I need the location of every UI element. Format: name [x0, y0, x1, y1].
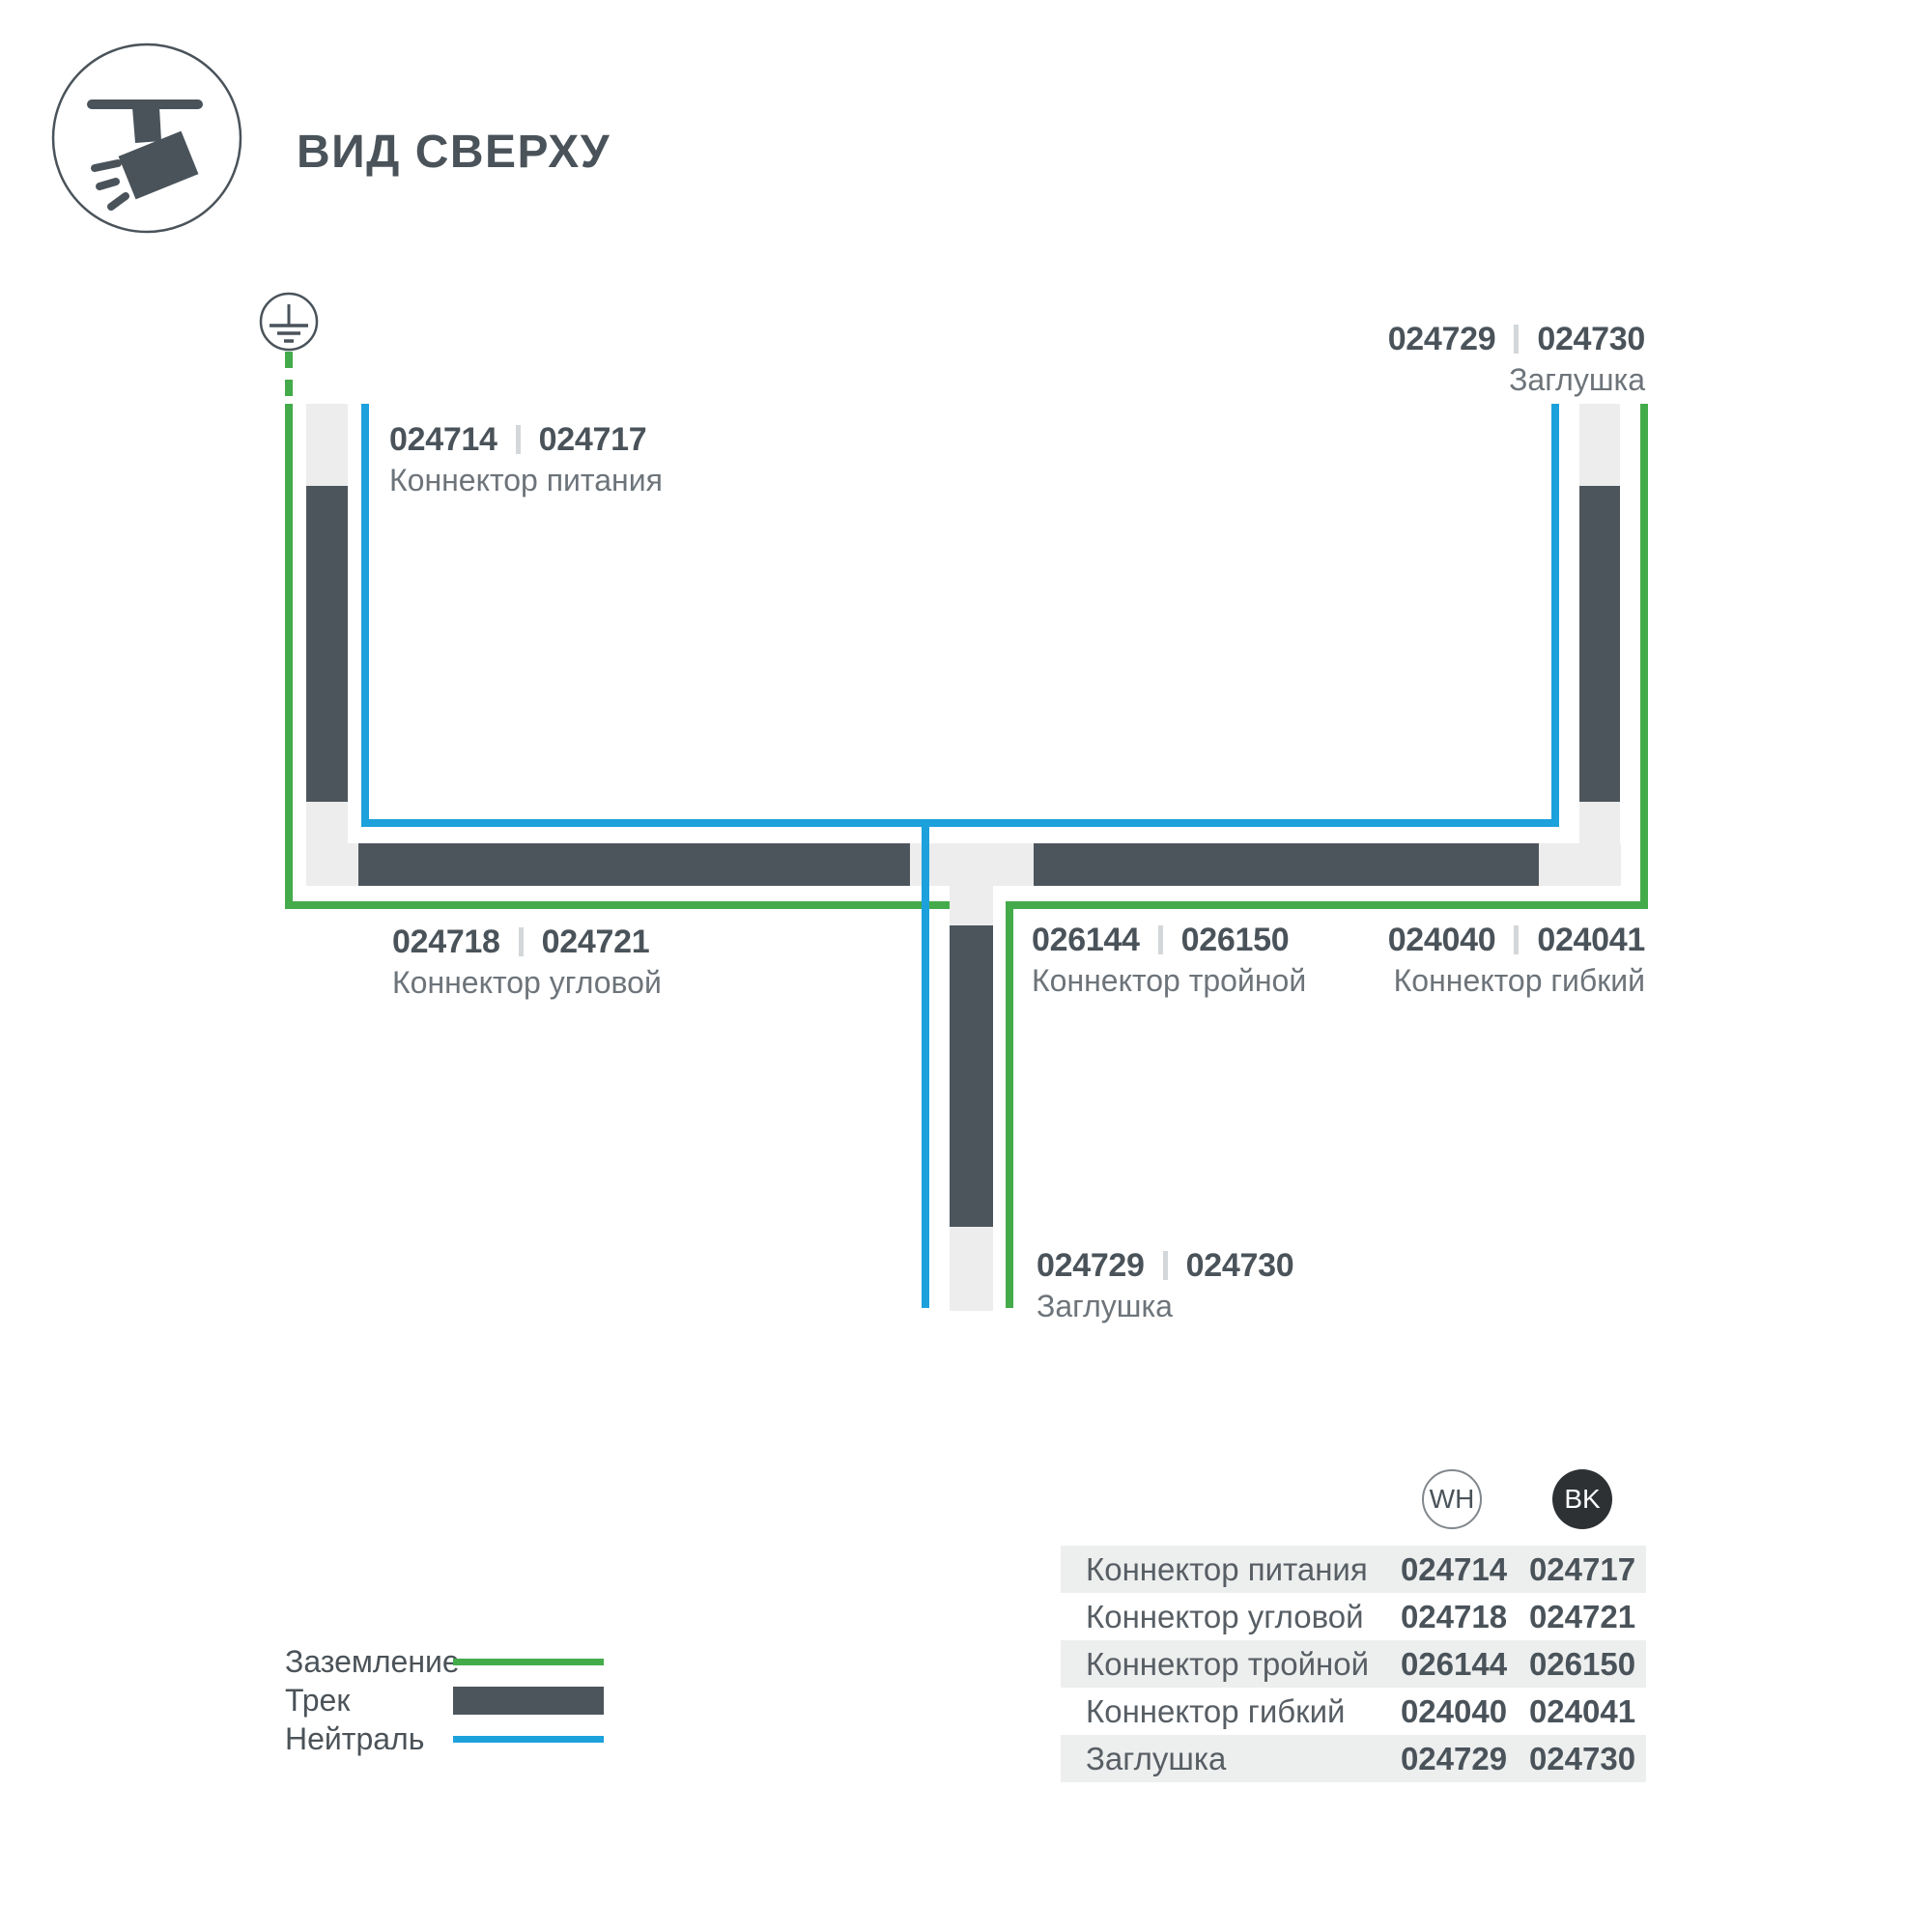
code-bk: 026150 [1181, 923, 1290, 956]
code-wh: 024040 [1388, 923, 1496, 956]
code-bk: 024730 [1537, 323, 1645, 355]
label-name: Коннектор угловой [392, 967, 662, 998]
label-flexible-connector: 024040 024041 Коннектор гибкий [1388, 923, 1645, 996]
table-row: Коннектор гибкий 024040 024041 [1061, 1688, 1646, 1735]
label-corner-connector: 024718 024721 Коннектор угловой [392, 925, 662, 998]
part-code-bk: 024730 [1519, 1743, 1646, 1775]
code-separator [1514, 925, 1519, 954]
label-power-connector: 024714 024717 Коннектор питания [389, 423, 663, 496]
track-horizontal-right-rail [1034, 843, 1539, 886]
code-separator [516, 425, 521, 454]
part-code-wh: 024718 [1389, 1601, 1519, 1633]
track-horizontal-left-rail [358, 843, 910, 886]
code-separator [1163, 1251, 1168, 1280]
code-bk: 024730 [1186, 1249, 1294, 1282]
code-separator [519, 927, 524, 956]
part-code-wh: 026144 [1389, 1648, 1519, 1680]
code-wh: 024718 [392, 925, 500, 958]
label-end-cap-bottom: 024729 024730 Заглушка [1037, 1249, 1293, 1321]
part-name: Коннектор гибкий [1061, 1695, 1389, 1727]
label-name: Коннектор питания [389, 465, 663, 496]
legend-row-neutral: Нейтраль [285, 1719, 604, 1758]
code-bk: 024041 [1537, 923, 1645, 956]
table-row: Коннектор тройной 026144 026150 [1061, 1640, 1646, 1688]
table-row: Коннектор питания 024714 024717 [1061, 1546, 1646, 1593]
legend-row-track: Трек [285, 1681, 604, 1719]
label-name: Коннектор гибкий [1388, 965, 1645, 996]
label-name: Заглушка [1388, 364, 1645, 395]
part-code-wh: 024040 [1389, 1695, 1519, 1727]
code-wh: 026144 [1032, 923, 1140, 956]
label-triple-connector: 026144 026150 Коннектор тройной [1032, 923, 1306, 996]
code-separator [1158, 925, 1163, 954]
part-name: Коннектор питания [1061, 1553, 1389, 1585]
label-codes: 024718 024721 [392, 925, 662, 958]
parts-table-header: WH BK [1061, 1469, 1646, 1546]
code-bk: 024721 [542, 925, 650, 958]
part-code-bk: 024721 [1519, 1601, 1646, 1633]
part-code-bk: 026150 [1519, 1648, 1646, 1680]
part-name: Заглушка [1061, 1743, 1389, 1775]
label-codes: 024040 024041 [1388, 923, 1645, 956]
label-end-cap-top: 024729 024730 Заглушка [1388, 323, 1645, 395]
track-swatch [453, 1687, 604, 1715]
part-name: Коннектор угловой [1061, 1601, 1389, 1633]
part-code-bk: 024717 [1519, 1553, 1646, 1585]
ground-line-swatch [453, 1659, 604, 1665]
legend: Заземление Трек Нейтраль [285, 1642, 604, 1758]
table-row: Заглушка 024729 024730 [1061, 1735, 1646, 1782]
label-name: Коннектор тройной [1032, 965, 1306, 996]
part-code-bk: 024041 [1519, 1695, 1646, 1727]
code-separator [1514, 325, 1519, 354]
table-row: Коннектор угловой 024718 024721 [1061, 1593, 1646, 1640]
legend-label: Нейтраль [285, 1723, 453, 1754]
legend-label: Заземление [285, 1646, 453, 1677]
track-stem-rail [950, 925, 993, 1227]
code-wh: 024729 [1037, 1249, 1145, 1282]
track-left-rail [306, 486, 348, 802]
track-right-rail [1579, 486, 1620, 802]
parts-table: WH BK Коннектор питания 024714 024717 Ко… [1061, 1469, 1646, 1782]
label-codes: 024714 024717 [389, 423, 663, 456]
part-name: Коннектор тройной [1061, 1648, 1389, 1680]
part-code-wh: 024729 [1389, 1743, 1519, 1775]
code-wh: 024714 [389, 423, 497, 456]
label-name: Заглушка [1037, 1291, 1293, 1321]
legend-row-ground: Заземление [285, 1642, 604, 1681]
ground-symbol-icon [261, 294, 317, 350]
part-code-wh: 024714 [1389, 1553, 1519, 1585]
neutral-line-swatch [453, 1736, 604, 1743]
label-codes: 026144 026150 [1032, 923, 1306, 956]
page: ВИД СВЕРХУ [0, 0, 1932, 1932]
code-bk: 024717 [539, 423, 647, 456]
legend-label: Трек [285, 1685, 453, 1716]
label-codes: 024729 024730 [1388, 323, 1645, 355]
black-variant-badge: BK [1552, 1469, 1612, 1529]
label-codes: 024729 024730 [1037, 1249, 1293, 1282]
white-variant-badge: WH [1422, 1469, 1482, 1529]
code-wh: 024729 [1388, 323, 1496, 355]
